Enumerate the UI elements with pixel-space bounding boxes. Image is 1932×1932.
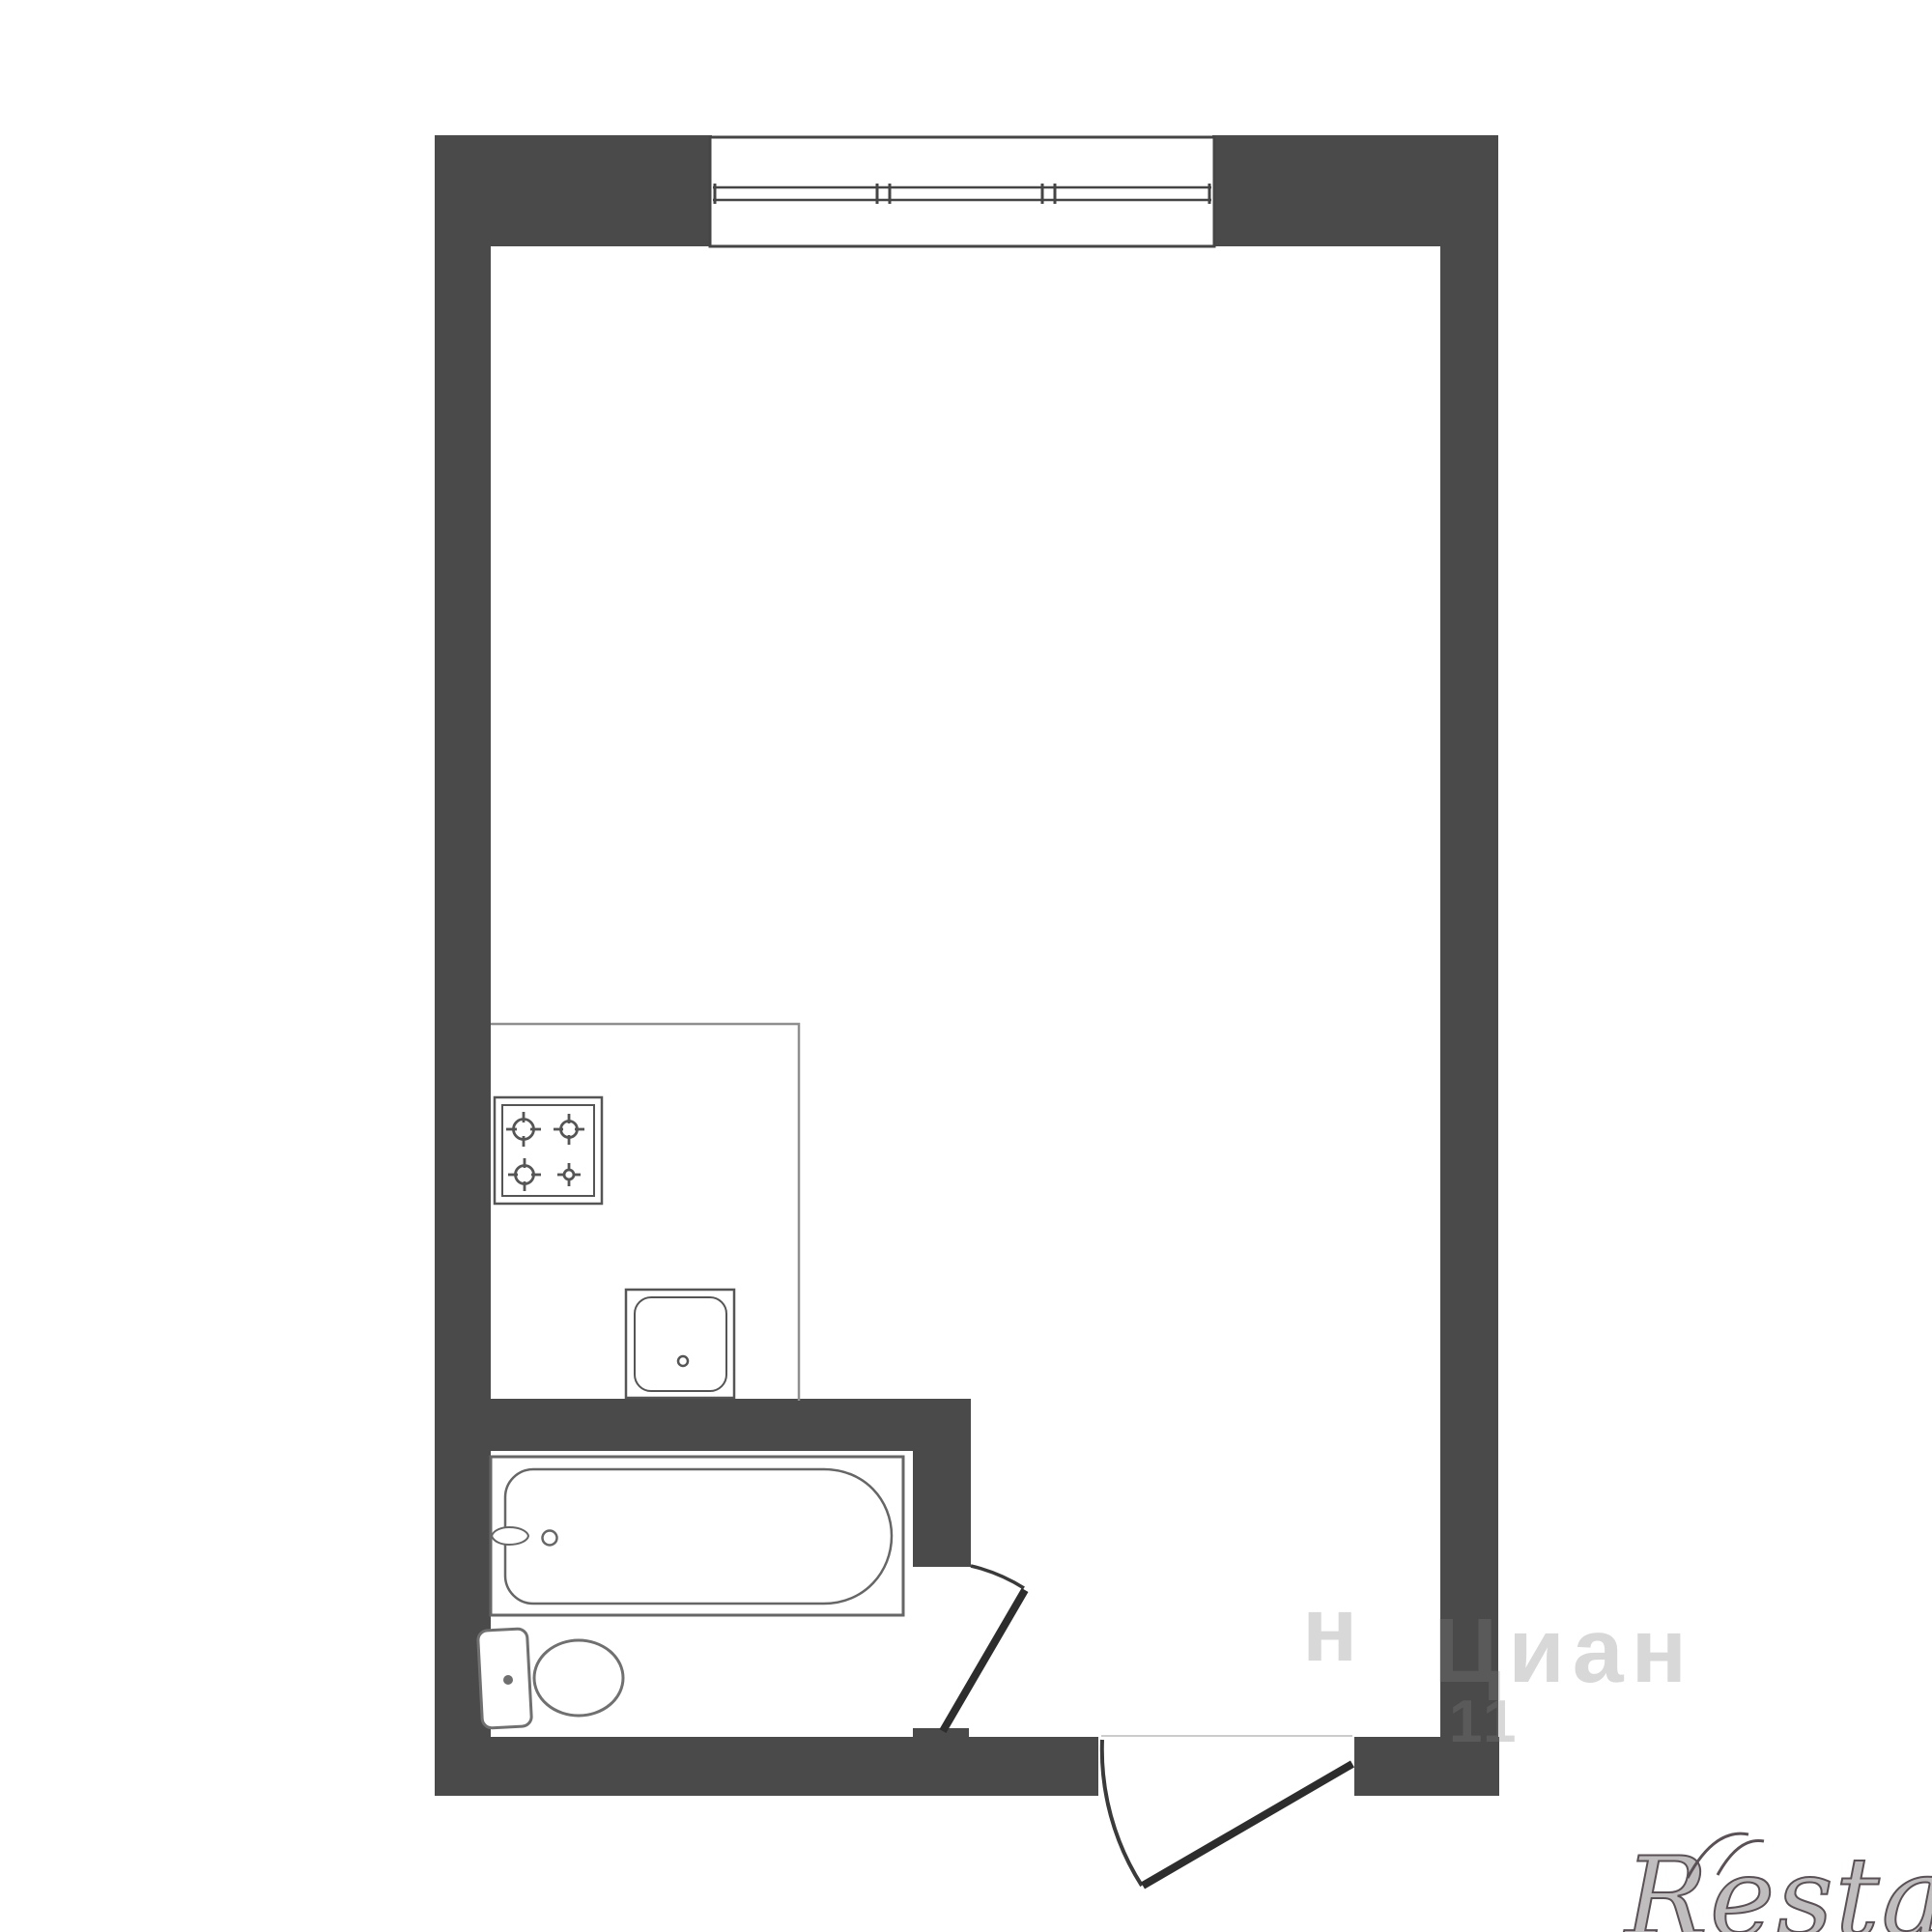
toilet-icon bbox=[477, 1629, 623, 1729]
fixtures-layer bbox=[0, 0, 1932, 1932]
sink-icon bbox=[626, 1290, 734, 1398]
floor-plan-canvas: н Циан 11 bbox=[0, 0, 1932, 1932]
brand-watermark: Restate bbox=[1625, 1843, 1932, 1932]
bathtub-icon bbox=[491, 1457, 903, 1615]
entrance-door-icon bbox=[1101, 1736, 1352, 1886]
stove-icon bbox=[495, 1097, 602, 1204]
bathroom-door-icon bbox=[943, 1566, 1025, 1731]
window-icon bbox=[710, 137, 1214, 246]
